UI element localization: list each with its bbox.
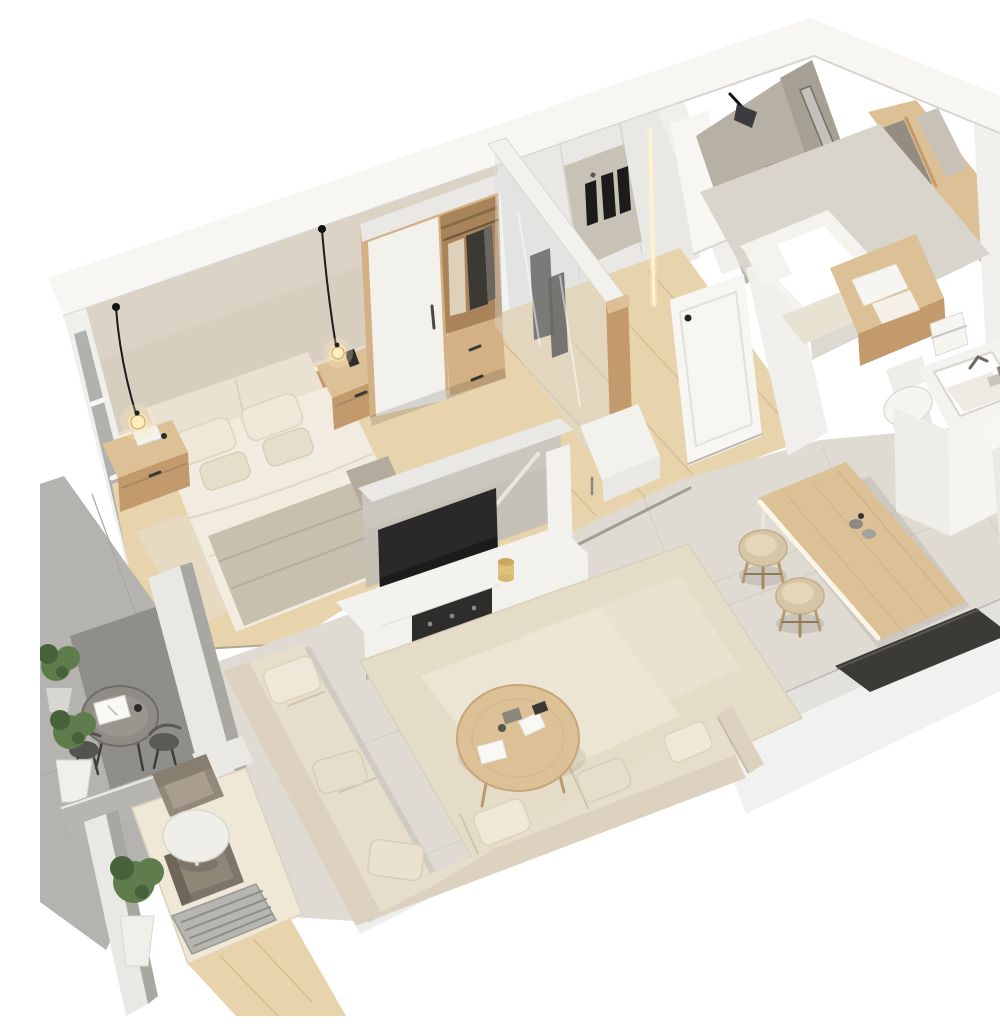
door-handle [685, 315, 692, 322]
hanging-clothes-beige [448, 238, 466, 316]
sofa-pillow [367, 838, 425, 881]
cup [498, 724, 506, 732]
table-jar [862, 529, 876, 539]
apartment-render: 3D isometric cutaway rendering of a one-… [40, 16, 1000, 1016]
candle [498, 558, 514, 582]
bar-stool [776, 578, 824, 636]
bar-stool [739, 530, 787, 588]
table-item [134, 704, 142, 712]
table-jar [849, 519, 863, 529]
floor-plan-render: 3D isometric cutaway rendering of a one-… [40, 16, 1000, 1016]
